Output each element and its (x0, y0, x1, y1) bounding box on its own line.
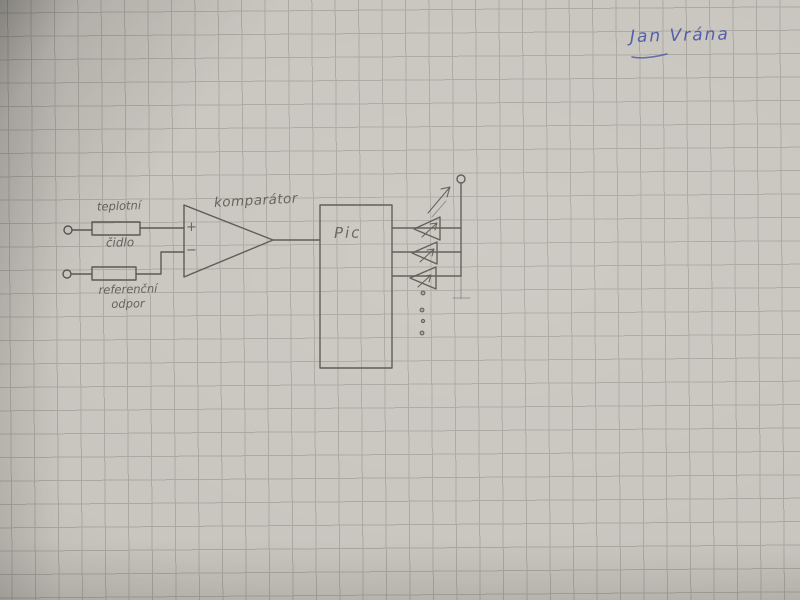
input-terminal-top (64, 226, 72, 234)
photographed-graph-paper: teplotní čidlo referenční odpor komparát… (0, 0, 800, 600)
ellipsis-dot (421, 319, 424, 322)
resistor-reference (92, 267, 136, 280)
bus-wire-faint-continuation (453, 276, 470, 299)
label-temp-sensor-line2: čidlo (94, 235, 146, 250)
ellipsis-dot (421, 291, 425, 295)
label-reference-line1: referenční (93, 281, 163, 297)
comparator-minus-input: − (186, 243, 197, 258)
output-terminal (457, 175, 465, 183)
wire (136, 252, 184, 274)
label-reference-line2: odpor (102, 296, 154, 311)
led-emission-arrow-stroke (432, 201, 446, 217)
signature-underline (632, 54, 667, 58)
led-3-emission-arrow (418, 275, 431, 287)
input-terminal-bottom (63, 270, 71, 278)
label-pic: Pic (334, 224, 362, 242)
led-3 (410, 267, 436, 289)
comparator-plus-input: + (186, 220, 197, 235)
ellipsis-dot (420, 308, 424, 312)
label-temp-sensor-line1: teplotní (88, 198, 150, 214)
comparator-triangle (184, 205, 273, 277)
signature-text: Jan Vrána (630, 24, 730, 47)
resistor-temperature-sensor (92, 222, 140, 235)
ellipsis-dot (420, 331, 424, 335)
